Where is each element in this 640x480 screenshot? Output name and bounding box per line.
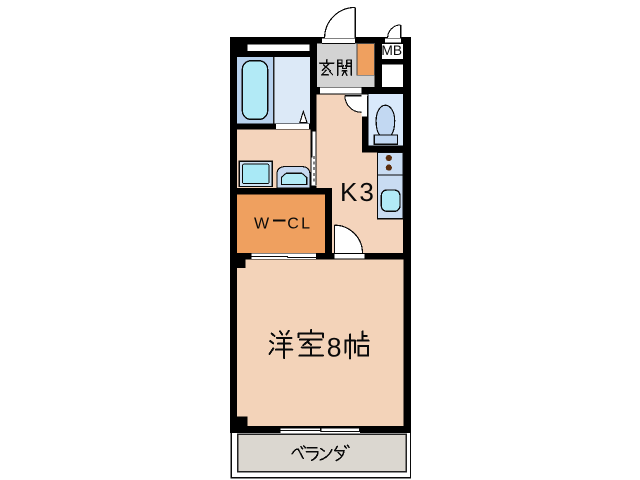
svg-text:MB: MB [381, 43, 402, 58]
svg-text:8: 8 [327, 333, 342, 363]
svg-text:W: W [254, 216, 271, 233]
svg-text:CL: CL [287, 216, 312, 233]
svg-text:K3: K3 [340, 177, 376, 207]
